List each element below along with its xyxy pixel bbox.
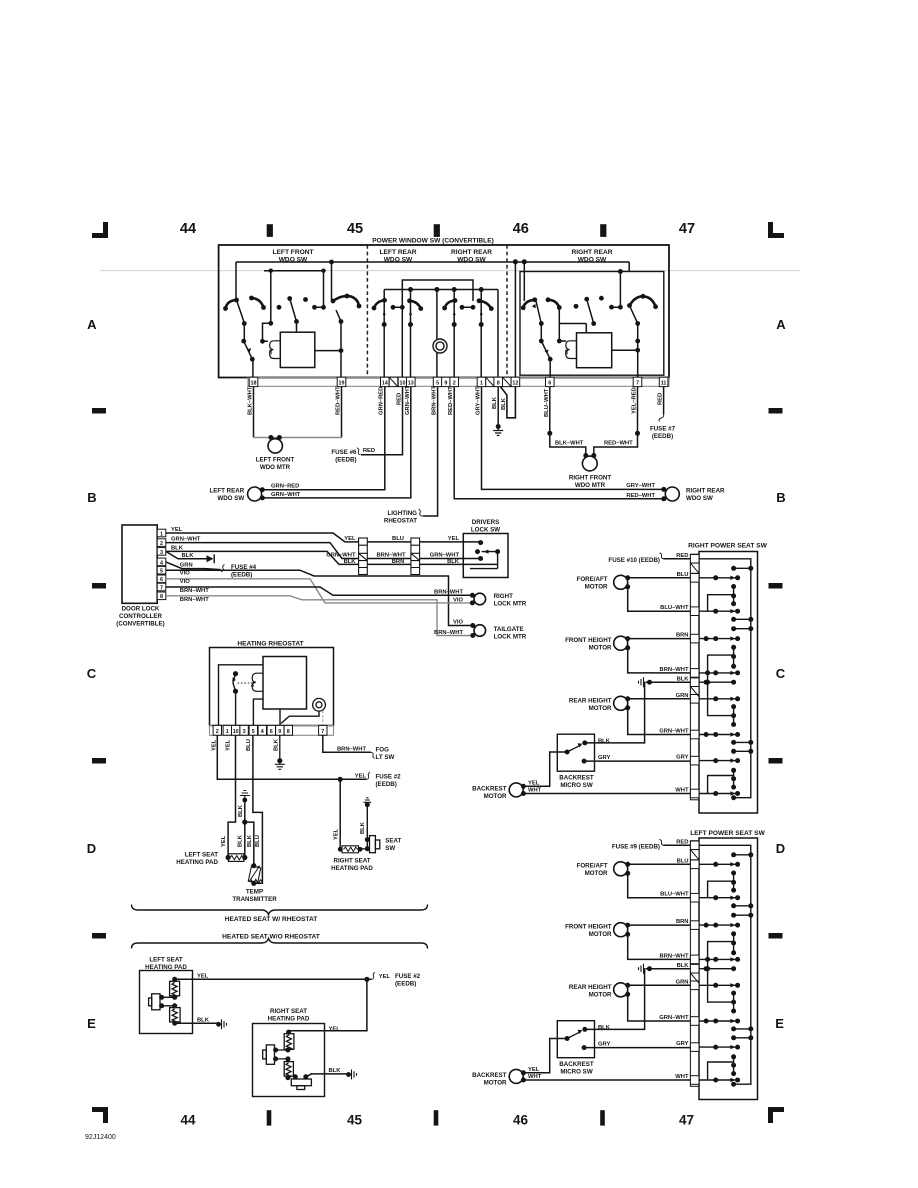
svg-text:4: 4	[160, 560, 163, 566]
svg-text:GRN–WHT: GRN–WHT	[171, 537, 201, 543]
svg-text:1: 1	[160, 531, 163, 537]
svg-text:44: 44	[180, 1112, 196, 1127]
svg-text:FUSE #2: FUSE #2	[376, 773, 402, 780]
svg-text:BRN: BRN	[392, 559, 405, 565]
svg-text:GRN–WHT: GRN–WHT	[326, 552, 356, 558]
svg-text:POWER WINDOW SW (CONVERTIBLE): POWER WINDOW SW (CONVERTIBLE)	[372, 238, 494, 245]
svg-text:HEATED SEAT W/O RHEOSTAT: HEATED SEAT W/O RHEOSTAT	[222, 934, 320, 941]
svg-text:YEL: YEL	[448, 536, 460, 542]
svg-text:LIGHTING: LIGHTING	[387, 510, 417, 517]
svg-text:GRN: GRN	[180, 562, 193, 568]
svg-text:SEAT: SEAT	[385, 838, 401, 845]
svg-text:6: 6	[270, 729, 273, 735]
svg-text:BLK–WHT: BLK–WHT	[247, 386, 253, 415]
svg-text:2: 2	[160, 541, 163, 547]
svg-text:FUSE #6: FUSE #6	[331, 449, 357, 456]
svg-text:WDO SW: WDO SW	[217, 495, 244, 502]
svg-text:E: E	[775, 1016, 784, 1031]
svg-text:FRONT HEIGHT: FRONT HEIGHT	[565, 637, 612, 644]
svg-text:YEL: YEL	[226, 739, 232, 751]
svg-text:RED: RED	[363, 448, 375, 454]
svg-text:RHEOSTAT: RHEOSTAT	[384, 518, 417, 525]
svg-text:WDO SW: WDO SW	[686, 495, 713, 502]
svg-text:B: B	[87, 490, 96, 505]
svg-text:1: 1	[226, 729, 229, 735]
svg-text:RED–WHT: RED–WHT	[448, 386, 454, 415]
svg-text:00: 00	[250, 681, 255, 687]
svg-text:WHT: WHT	[528, 788, 542, 794]
svg-text:A: A	[776, 317, 786, 332]
svg-text:BLK: BLK	[344, 559, 357, 565]
svg-text:2: 2	[453, 381, 456, 387]
svg-text:4: 4	[261, 729, 264, 735]
svg-text:RED: RED	[658, 393, 664, 405]
svg-text:LEFT POWER SEAT SW: LEFT POWER SEAT SW	[690, 830, 765, 837]
svg-text:FUSE #10 (EEDB): FUSE #10 (EEDB)	[608, 557, 660, 564]
svg-text:C: C	[87, 666, 97, 681]
svg-text:C: C	[776, 666, 786, 681]
svg-text:VIO: VIO	[180, 579, 190, 585]
svg-text:SW: SW	[385, 845, 395, 852]
svg-text:HEATING PAD: HEATING PAD	[268, 1016, 310, 1023]
svg-text:BLK: BLK	[182, 553, 195, 559]
svg-text:7: 7	[636, 381, 639, 387]
svg-text:(EEDB): (EEDB)	[231, 572, 252, 579]
svg-text:RED: RED	[397, 393, 403, 405]
svg-text:YEL: YEL	[329, 1026, 341, 1032]
svg-text:HEATING PAD: HEATING PAD	[176, 859, 218, 866]
svg-text:BLK: BLK	[238, 804, 244, 817]
svg-text:YEL: YEL	[355, 773, 367, 779]
svg-text:RIGHT REAR: RIGHT REAR	[451, 249, 492, 256]
svg-text:WHT: WHT	[675, 788, 689, 794]
svg-text:LOCK MTR: LOCK MTR	[494, 601, 527, 608]
svg-text:45: 45	[347, 1112, 363, 1127]
svg-text:VIO: VIO	[453, 620, 463, 626]
svg-text:BLU: BLU	[246, 739, 252, 751]
svg-text:BLK: BLK	[598, 738, 611, 744]
svg-text:WDO MTR: WDO MTR	[575, 482, 606, 489]
svg-text:3: 3	[243, 729, 246, 735]
svg-text:RIGHT SEAT: RIGHT SEAT	[333, 858, 370, 865]
svg-text:VIO: VIO	[453, 597, 463, 603]
svg-text:DRIVERS: DRIVERS	[472, 519, 500, 526]
svg-text:GRN–WHT: GRN–WHT	[659, 729, 689, 735]
svg-text:BLK: BLK	[329, 1068, 342, 1074]
svg-text:00: 00	[564, 349, 569, 355]
svg-text:44: 44	[180, 221, 197, 237]
svg-text:YEL–RED: YEL–RED	[631, 387, 637, 414]
svg-text:18: 18	[251, 381, 257, 387]
svg-text:6: 6	[548, 381, 551, 387]
svg-text:RIGHT: RIGHT	[494, 593, 513, 600]
svg-text:FUSE #7: FUSE #7	[650, 426, 676, 433]
svg-text:47: 47	[679, 1112, 694, 1127]
svg-text:12: 12	[512, 381, 518, 387]
svg-text:LOCK SW: LOCK SW	[471, 527, 500, 534]
svg-text:BLU: BLU	[677, 572, 689, 578]
svg-text:RIGHT SEAT: RIGHT SEAT	[270, 1008, 307, 1015]
svg-text:BLK: BLK	[197, 1017, 210, 1023]
svg-text:GRN–RED: GRN–RED	[271, 484, 299, 490]
svg-text:REAR HEIGHT: REAR HEIGHT	[569, 697, 612, 704]
svg-text:9: 9	[444, 381, 447, 387]
svg-text:D: D	[776, 841, 785, 856]
svg-text:BLK: BLK	[238, 834, 244, 847]
svg-text:8: 8	[160, 594, 163, 600]
svg-text:8: 8	[497, 381, 500, 387]
svg-text:GRY: GRY	[676, 755, 688, 761]
svg-text:BRN–WHT: BRN–WHT	[434, 589, 463, 595]
svg-text:BLK: BLK	[274, 738, 280, 751]
svg-text:5: 5	[436, 381, 439, 387]
svg-text:TRANSMITTER: TRANSMITTER	[232, 896, 277, 903]
svg-text:FUSE #2: FUSE #2	[395, 973, 421, 980]
svg-text:YEL: YEL	[344, 536, 356, 542]
svg-text:RIGHT REAR: RIGHT REAR	[686, 488, 725, 495]
svg-text:GRN–RED: GRN–RED	[379, 387, 385, 415]
svg-text:HEATED SEAT W/ RHEOSTAT: HEATED SEAT W/ RHEOSTAT	[225, 916, 318, 923]
svg-text:BLK: BLK	[492, 396, 498, 409]
svg-text:RED–WHT: RED–WHT	[604, 440, 633, 446]
svg-text:00: 00	[268, 349, 273, 355]
svg-text:1: 1	[480, 381, 483, 387]
svg-text:TAILGATE: TAILGATE	[494, 626, 524, 633]
svg-text:FOG: FOG	[376, 747, 390, 754]
svg-text:D: D	[87, 841, 96, 856]
svg-text:YEL: YEL	[334, 828, 340, 840]
svg-text:LEFT FRONT: LEFT FRONT	[256, 457, 295, 464]
svg-text:BLK: BLK	[677, 676, 690, 682]
svg-text:GRN–WHT: GRN–WHT	[271, 492, 301, 498]
svg-text:LOCK MTR: LOCK MTR	[494, 634, 527, 641]
svg-text:BLK: BLK	[501, 397, 507, 410]
svg-text:WDO MTR: WDO MTR	[260, 464, 291, 471]
svg-text:CONTROLLER: CONTROLLER	[119, 613, 162, 620]
svg-text:5: 5	[160, 569, 163, 575]
svg-text:BRN–WHT: BRN–WHT	[180, 597, 209, 603]
svg-text:RIGHT POWER SEAT SW: RIGHT POWER SEAT SW	[688, 543, 767, 550]
svg-text:45: 45	[347, 221, 363, 237]
svg-text:(EEDB): (EEDB)	[395, 980, 416, 987]
svg-text:3: 3	[160, 550, 163, 556]
svg-text:GRY–WHT: GRY–WHT	[626, 483, 655, 489]
svg-text:RIGHT REAR: RIGHT REAR	[571, 249, 612, 256]
svg-text:YEL: YEL	[528, 781, 540, 787]
svg-text:LT SW: LT SW	[376, 754, 395, 761]
svg-text:HEATING PAD: HEATING PAD	[145, 964, 187, 971]
svg-text:MOTOR: MOTOR	[589, 644, 612, 651]
svg-text:BLU–WHT: BLU–WHT	[660, 605, 689, 611]
svg-text:GRN–WHT: GRN–WHT	[405, 385, 411, 415]
svg-text:(CONVERTIBLE): (CONVERTIBLE)	[116, 621, 164, 628]
svg-text:GRY: GRY	[598, 755, 610, 761]
svg-text:RED–WHT: RED–WHT	[626, 493, 655, 499]
svg-text:BRN–WHT: BRN–WHT	[432, 386, 438, 415]
svg-text:BLU: BLU	[392, 536, 404, 542]
svg-text:HEATING RHEOSTAT: HEATING RHEOSTAT	[237, 641, 303, 648]
svg-text:RED–WHT: RED–WHT	[335, 386, 341, 415]
svg-text:FUSE #9 (EEDB): FUSE #9 (EEDB)	[612, 844, 660, 851]
svg-text:BLU–WHT: BLU–WHT	[544, 388, 550, 417]
svg-text:MICRO SW: MICRO SW	[560, 782, 592, 789]
svg-text:YEL: YEL	[197, 973, 209, 979]
svg-text:6: 6	[160, 577, 163, 583]
svg-text:LEFT SEAT: LEFT SEAT	[185, 852, 218, 859]
svg-text:MOTOR: MOTOR	[589, 705, 612, 712]
svg-text:BLK–WHT: BLK–WHT	[555, 440, 584, 446]
svg-text:DOOR LOCK: DOOR LOCK	[122, 606, 160, 613]
svg-text:(EEDB): (EEDB)	[652, 433, 673, 440]
svg-text:BRN–WHT: BRN–WHT	[660, 667, 689, 673]
svg-text:8: 8	[287, 729, 290, 735]
svg-text:RIGHT FRONT: RIGHT FRONT	[569, 475, 611, 482]
svg-text:BRN–WHT: BRN–WHT	[434, 630, 463, 636]
svg-text:11: 11	[661, 381, 667, 387]
svg-text:BACKREST: BACKREST	[472, 786, 507, 793]
svg-text:(EEDB): (EEDB)	[335, 457, 356, 464]
svg-text:YEL: YEL	[171, 527, 183, 533]
svg-text:LEFT REAR: LEFT REAR	[209, 488, 244, 495]
svg-text:BLK: BLK	[447, 559, 460, 565]
svg-text:BRN–WHT: BRN–WHT	[337, 746, 366, 752]
svg-text:A: A	[87, 317, 97, 332]
svg-text:HEATING PAD: HEATING PAD	[331, 865, 373, 872]
svg-text:RED: RED	[676, 553, 688, 559]
svg-text:BLK: BLK	[360, 821, 366, 834]
svg-text:BLK: BLK	[171, 545, 184, 551]
svg-text:YEL: YEL	[379, 974, 391, 980]
svg-text:FORE/AFT: FORE/AFT	[577, 576, 608, 583]
svg-text:(EEDB): (EEDB)	[376, 781, 397, 788]
svg-text:46: 46	[513, 1112, 529, 1127]
svg-text:GRN–WHT: GRN–WHT	[430, 552, 460, 558]
svg-text:2: 2	[216, 729, 219, 735]
svg-text:19: 19	[339, 381, 345, 387]
svg-text:YEL: YEL	[221, 835, 227, 847]
svg-text:LEFT SEAT: LEFT SEAT	[149, 957, 182, 964]
svg-text:BLK: BLK	[247, 834, 253, 847]
svg-text:MOTOR: MOTOR	[585, 584, 608, 591]
svg-text:BLU: BLU	[255, 835, 261, 847]
svg-text:BRN: BRN	[676, 633, 689, 639]
svg-text:14: 14	[382, 381, 388, 387]
svg-text:LEFT FRONT: LEFT FRONT	[272, 249, 313, 256]
svg-text:5: 5	[252, 729, 255, 735]
svg-text:B: B	[776, 490, 785, 505]
svg-text:MOTOR: MOTOR	[484, 793, 507, 800]
svg-text:47: 47	[679, 221, 695, 237]
svg-text:GRN: GRN	[676, 693, 689, 699]
svg-text:7: 7	[160, 585, 163, 591]
svg-text:BRN–WHT: BRN–WHT	[180, 588, 209, 594]
svg-text:GRY–WHT: GRY–WHT	[476, 386, 482, 415]
svg-text:TEMP: TEMP	[246, 889, 263, 896]
svg-text:LEFT REAR: LEFT REAR	[380, 249, 417, 256]
svg-text:VIO: VIO	[180, 570, 190, 576]
svg-text:7: 7	[321, 729, 324, 735]
svg-text:92J12400: 92J12400	[85, 1134, 116, 1141]
svg-text:BACKREST: BACKREST	[559, 774, 594, 781]
svg-text:E: E	[87, 1016, 96, 1031]
svg-text:10: 10	[233, 729, 239, 735]
svg-text:BRN–WHT: BRN–WHT	[377, 552, 406, 558]
svg-text:46: 46	[513, 221, 529, 237]
svg-text:9: 9	[278, 729, 281, 735]
